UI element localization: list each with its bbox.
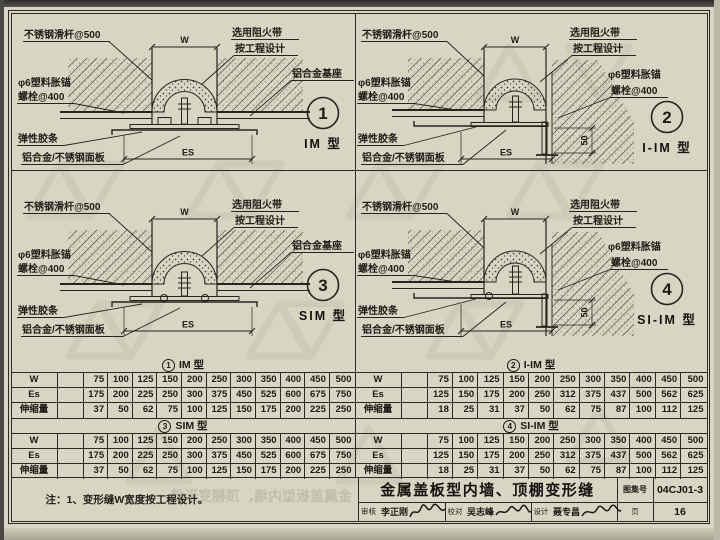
row-label-cell: W	[12, 434, 58, 448]
value-cell: 150	[453, 449, 478, 463]
label-panel: 铝合金/不锈钢面板	[362, 151, 446, 164]
diagram-row-top: W ES 不锈钢滑杆@500 选用阻火带 按工程设计 铝合金基座 φ6塑料胀锚 …	[12, 14, 707, 171]
reviewer-label: 审核	[359, 503, 379, 521]
value-cell: 500	[681, 434, 706, 448]
value-cell: 31	[478, 464, 503, 479]
value-cell: 375	[207, 388, 232, 402]
dimension-tables: 1IM 型W75100125150200250300350400450500Es…	[12, 358, 707, 478]
row-label-cell: 伸缩量	[356, 403, 402, 418]
value-cell: 750	[330, 449, 355, 463]
label-fire-2: 按工程设计	[573, 42, 623, 55]
sheet-content: W ES 不锈钢滑杆@500 选用阻火带 按工程设计 铝合金基座 φ6塑料胀锚 …	[12, 14, 707, 521]
value-cell: 18	[428, 403, 453, 418]
value-cell: 300	[580, 373, 605, 387]
label-panel: 铝合金/不锈钢面板	[22, 151, 106, 164]
value-cell: 250	[554, 434, 579, 448]
value-cell: 200	[529, 434, 554, 448]
circled-number: 1	[162, 359, 175, 372]
value-cell: 250	[330, 464, 355, 479]
diagram-3-drawing: W ES 不锈钢滑杆@500 选用阻火带 按工程设计 铝合金基座 φ6塑料胀锚 …	[12, 186, 356, 342]
blank-cell	[58, 388, 84, 402]
value-cell: 200	[529, 373, 554, 387]
value-cell: 562	[656, 388, 681, 402]
label-slide-rod: 不锈钢滑杆@500	[362, 28, 439, 41]
value-cell: 87	[605, 403, 630, 418]
value-cell: 150	[157, 434, 182, 448]
label-rubber: 弹性胶条	[18, 132, 59, 145]
value-cell: 200	[504, 388, 529, 402]
dim-w: W	[180, 35, 189, 45]
table-row: W75100125150200250300350400450500	[12, 434, 355, 449]
value-cell: 500	[681, 373, 706, 387]
value-cell: 200	[281, 403, 306, 418]
label-fire-2: 按工程设计	[573, 214, 623, 227]
signature-scribble-icon	[407, 503, 447, 521]
label-fire-2: 按工程设计	[235, 214, 285, 227]
table-type-name: SIM 型	[175, 420, 207, 432]
value-cell: 100	[630, 464, 655, 479]
blank-cell	[402, 464, 428, 479]
value-cell: 312	[554, 388, 579, 402]
value-cell: 250	[529, 388, 554, 402]
value-cell: 125	[478, 373, 503, 387]
value-cell: 37	[84, 464, 109, 479]
circled-number: 4	[503, 420, 516, 433]
value-cell: 600	[281, 449, 306, 463]
value-cell: 62	[133, 403, 158, 418]
value-cell: 437	[605, 449, 630, 463]
value-cell: 375	[207, 449, 232, 463]
value-cell: 100	[630, 403, 655, 418]
value-cell: 450	[305, 373, 330, 387]
value-cell: 150	[157, 373, 182, 387]
value-cell: 125	[428, 449, 453, 463]
table-title: 2I-IM 型	[356, 358, 707, 373]
label-base: 铝合金基座	[292, 67, 342, 80]
label-anchor-right-2: 螺栓@400	[611, 84, 658, 97]
diagram-type: SIM 型	[298, 308, 346, 323]
diagram-4-drawing: W ES 50 不锈钢滑杆@500 选用阻火带 按工程设计 φ6塑料胀锚 螺栓@…	[356, 186, 700, 342]
value-cell: 87	[605, 464, 630, 479]
label-rubber: 弹性胶条	[358, 132, 399, 145]
value-cell: 125	[207, 403, 232, 418]
label-fire-2: 按工程设计	[235, 42, 285, 55]
value-cell: 225	[305, 464, 330, 479]
value-cell: 562	[656, 449, 681, 463]
row-label-cell: W	[356, 434, 402, 448]
value-cell: 600	[281, 388, 306, 402]
label-anchor-left-2: 螺栓@400	[358, 90, 405, 103]
value-cell: 75	[157, 403, 182, 418]
title-block-row-1: 金属盖板型内墙、顶棚变形缝 图集号 04CJ01-3	[359, 478, 707, 503]
row-label-cell: W	[356, 373, 402, 387]
row-label-cell: Es	[356, 449, 402, 463]
value-cell: 312	[554, 449, 579, 463]
value-cell: 350	[256, 373, 281, 387]
table-row: 伸缩量37506275100125150175200225250	[12, 403, 355, 418]
row-label-cell: 伸缩量	[12, 403, 58, 418]
value-cell: 450	[656, 373, 681, 387]
value-cell: 225	[305, 403, 330, 418]
blank-cell	[58, 449, 84, 463]
blank-cell	[402, 449, 428, 463]
value-cell: 125	[207, 464, 232, 479]
value-cell: 450	[656, 434, 681, 448]
value-cell: 75	[580, 403, 605, 418]
label-anchor-1: φ6塑料胀锚	[18, 248, 71, 261]
tables-right-column: 2I-IM 型W75100125150200250300350400450500…	[356, 358, 707, 477]
value-cell: 300	[231, 373, 256, 387]
value-cell: 150	[231, 403, 256, 418]
diagram-type: I-IM 型	[642, 140, 692, 155]
label-fire-1: 选用阻火带	[570, 26, 620, 39]
value-cell: 50	[529, 403, 554, 418]
dim-50: 50	[579, 135, 589, 145]
scan-edge-top	[0, 0, 720, 7]
circled-number: 3	[158, 420, 171, 433]
table-title: 1IM 型	[12, 358, 355, 373]
dim-es: ES	[181, 147, 193, 157]
diagram-2-i-im: W ES 50 不锈钢滑杆@500 选用阻火带 按工程设计 φ6塑料胀锚 螺栓@…	[356, 14, 707, 170]
value-cell: 500	[330, 373, 355, 387]
value-cell: 675	[305, 449, 330, 463]
value-cell: 150	[453, 388, 478, 402]
table-row: W75100125150200250300350400450500	[356, 373, 707, 388]
diagram-4-si-im: W ES 50 不锈钢滑杆@500 选用阻火带 按工程设计 φ6塑料胀锚 螺栓@…	[356, 171, 707, 358]
value-cell: 200	[182, 434, 207, 448]
blank-cell	[58, 464, 84, 479]
value-cell: 50	[529, 464, 554, 479]
table-row: Es175200225250300375450525600675750	[12, 449, 355, 464]
dim-w: W	[510, 35, 519, 45]
value-cell: 150	[231, 464, 256, 479]
table-row: W75100125150200250300350400450500	[12, 373, 355, 388]
dim-w: W	[510, 207, 519, 217]
dim-es: ES	[181, 319, 193, 329]
value-cell: 175	[84, 388, 109, 402]
table-row: Es125150175200250312375437500562625	[356, 449, 707, 464]
value-cell: 175	[478, 449, 503, 463]
label-fire-1: 选用阻火带	[232, 26, 282, 39]
value-cell: 250	[207, 373, 232, 387]
value-cell: 200	[281, 464, 306, 479]
value-cell: 400	[630, 373, 655, 387]
value-cell: 350	[256, 434, 281, 448]
label-panel: 铝合金/不锈钢面板	[22, 323, 106, 336]
value-cell: 525	[256, 449, 281, 463]
table-sim: 3SIM 型W75100125150200250300350400450500E…	[12, 418, 355, 478]
scan-edge-right	[714, 0, 720, 540]
value-cell: 112	[656, 403, 681, 418]
value-cell: 100	[453, 373, 478, 387]
row-label-cell: Es	[12, 449, 58, 463]
note-box: 金属盖板型内墙、顶棚变形缝 注：1、变形缝W宽度按工程设计。	[12, 478, 359, 521]
label-slide-rod: 不锈钢滑杆@500	[24, 28, 101, 41]
dim-50: 50	[579, 307, 589, 317]
label-anchor-right-1: φ6塑料胀锚	[608, 240, 661, 253]
value-cell: 25	[453, 403, 478, 418]
row-label-cell: 伸缩量	[356, 464, 402, 479]
value-cell: 450	[305, 434, 330, 448]
table-row: Es175200225250300375450525600675750	[12, 388, 355, 403]
value-cell: 400	[630, 434, 655, 448]
value-cell: 450	[231, 449, 256, 463]
label-anchor-right-1: φ6塑料胀锚	[608, 68, 661, 81]
value-cell: 31	[478, 403, 503, 418]
value-cell: 750	[330, 388, 355, 402]
value-cell: 200	[108, 388, 133, 402]
value-cell: 50	[108, 403, 133, 418]
title-block-row-2: 审核 李正刚 校对 吴志峰 设计 聂专昌	[359, 503, 707, 521]
value-cell: 125	[133, 373, 158, 387]
diagram-number: 1	[318, 104, 327, 123]
label-slide-rod: 不锈钢滑杆@500	[24, 200, 101, 213]
value-cell: 100	[182, 403, 207, 418]
table-type-name: I-IM 型	[524, 359, 556, 371]
value-cell: 125	[478, 434, 503, 448]
value-cell: 625	[681, 449, 706, 463]
diagram-3-sim: W ES 不锈钢滑杆@500 选用阻火带 按工程设计 铝合金基座 φ6塑料胀锚 …	[12, 171, 356, 358]
value-cell: 400	[281, 434, 306, 448]
value-cell: 75	[428, 434, 453, 448]
label-anchor-1: φ6塑料胀锚	[18, 76, 71, 89]
value-cell: 500	[630, 449, 655, 463]
row-label-cell: Es	[12, 388, 58, 402]
blank-cell	[58, 403, 84, 418]
title-block: 金属盖板型内墙、顶棚变形缝 图集号 04CJ01-3 审核 李正刚 校对 吴志峰	[359, 478, 707, 521]
label-anchor-left-2: 螺栓@400	[358, 262, 405, 275]
value-cell: 75	[428, 373, 453, 387]
value-cell: 100	[453, 434, 478, 448]
value-cell: 62	[554, 403, 579, 418]
value-cell: 100	[108, 434, 133, 448]
label-base: 铝合金基座	[292, 239, 342, 252]
footer-band: 金属盖板型内墙、顶棚变形缝 注：1、变形缝W宽度按工程设计。 金属盖板型内墙、顶…	[12, 478, 707, 521]
diagram-1-drawing: W ES 不锈钢滑杆@500 选用阻火带 按工程设计 铝合金基座 φ6塑料胀锚 …	[12, 14, 356, 170]
value-cell: 375	[580, 449, 605, 463]
blank-cell	[58, 434, 84, 448]
value-cell: 200	[182, 373, 207, 387]
diagram-number: 3	[318, 276, 327, 295]
value-cell: 75	[157, 464, 182, 479]
value-cell: 450	[231, 388, 256, 402]
label-rubber: 弹性胶条	[18, 304, 59, 317]
diagram-type: SI-IM 型	[637, 312, 697, 327]
dim-es: ES	[499, 147, 511, 157]
value-cell: 250	[529, 449, 554, 463]
diagram-row-bottom: W ES 不锈钢滑杆@500 选用阻火带 按工程设计 铝合金基座 φ6塑料胀锚 …	[12, 171, 707, 358]
value-cell: 125	[681, 464, 706, 479]
label-rubber: 弹性胶条	[358, 304, 399, 317]
value-cell: 100	[182, 464, 207, 479]
value-cell: 250	[554, 373, 579, 387]
table-si-im: 4SI-IM 型W7510012515020025030035040045050…	[356, 418, 707, 478]
scan-edge-left	[0, 0, 4, 540]
value-cell: 250	[207, 434, 232, 448]
value-cell: 250	[157, 388, 182, 402]
value-cell: 225	[133, 388, 158, 402]
value-cell: 200	[504, 449, 529, 463]
table-title: 3SIM 型	[12, 419, 355, 434]
signature-scribble-icon	[579, 503, 623, 521]
note-text: 注：1、变形缝W宽度按工程设计。	[46, 492, 209, 507]
designer-label: 设计	[531, 503, 551, 521]
page-number: 16	[653, 503, 707, 521]
value-cell: 350	[605, 434, 630, 448]
atlas-sheet: W ES 不锈钢滑杆@500 选用阻火带 按工程设计 铝合金基座 φ6塑料胀锚 …	[8, 10, 710, 524]
diagram-2-drawing: W ES 50 不锈钢滑杆@500 选用阻火带 按工程设计 φ6塑料胀锚 螺栓@…	[356, 14, 700, 170]
value-cell: 437	[605, 388, 630, 402]
label-anchor-2: 螺栓@400	[18, 90, 65, 103]
value-cell: 300	[580, 434, 605, 448]
atlas-no-value: 04CJ01-3	[653, 478, 707, 502]
value-cell: 62	[133, 464, 158, 479]
value-cell: 18	[428, 464, 453, 479]
signature-scribble-icon	[493, 503, 533, 521]
value-cell: 300	[231, 434, 256, 448]
value-cell: 75	[84, 373, 109, 387]
label-fire-1: 选用阻火带	[570, 198, 620, 211]
label-panel: 铝合金/不锈钢面板	[362, 323, 446, 336]
value-cell: 500	[330, 434, 355, 448]
label-anchor-right-2: 螺栓@400	[611, 256, 658, 269]
tables-left-column: 1IM 型W75100125150200250300350400450500Es…	[12, 358, 356, 477]
value-cell: 175	[256, 464, 281, 479]
value-cell: 25	[453, 464, 478, 479]
label-anchor-left-1: φ6塑料胀锚	[358, 76, 411, 89]
row-label-cell: 伸缩量	[12, 464, 58, 479]
value-cell: 125	[428, 388, 453, 402]
label-slide-rod: 不锈钢滑杆@500	[362, 200, 439, 213]
value-cell: 300	[182, 388, 207, 402]
label-anchor-left-1: φ6塑料胀锚	[358, 248, 411, 261]
table-row: 伸缩量1825313750627587100112125	[356, 403, 707, 418]
table-im: 1IM 型W75100125150200250300350400450500Es…	[12, 358, 355, 418]
value-cell: 350	[605, 373, 630, 387]
atlas-no-label: 图集号	[617, 478, 653, 502]
dim-w: W	[180, 207, 189, 217]
value-cell: 62	[554, 464, 579, 479]
value-cell: 37	[504, 464, 529, 479]
label-fire-1: 选用阻火带	[232, 198, 282, 211]
value-cell: 375	[580, 388, 605, 402]
value-cell: 125	[133, 434, 158, 448]
table-title: 4SI-IM 型	[356, 419, 707, 434]
diagram-type: IM 型	[304, 136, 342, 151]
value-cell: 150	[504, 373, 529, 387]
table-type-name: IM 型	[179, 359, 204, 371]
table-row: 伸缩量1825313750627587100112125	[356, 464, 707, 479]
value-cell: 625	[681, 388, 706, 402]
diagram-1-im: W ES 不锈钢滑杆@500 选用阻火带 按工程设计 铝合金基座 φ6塑料胀锚 …	[12, 14, 356, 170]
value-cell: 112	[656, 464, 681, 479]
value-cell: 75	[580, 464, 605, 479]
table-row: W75100125150200250300350400450500	[356, 434, 707, 449]
row-label-cell: W	[12, 373, 58, 387]
value-cell: 175	[478, 388, 503, 402]
scan-edge-bottom	[0, 528, 720, 540]
blank-cell	[402, 403, 428, 418]
blank-cell	[58, 373, 84, 387]
value-cell: 225	[133, 449, 158, 463]
dim-es: ES	[499, 319, 511, 329]
diagram-number: 2	[662, 108, 671, 127]
value-cell: 500	[630, 388, 655, 402]
value-cell: 300	[182, 449, 207, 463]
value-cell: 200	[108, 449, 133, 463]
value-cell: 250	[330, 403, 355, 418]
row-label-cell: Es	[356, 388, 402, 402]
table-i-im: 2I-IM 型W75100125150200250300350400450500…	[356, 358, 707, 418]
value-cell: 175	[84, 449, 109, 463]
table-row: Es125150175200250312375437500562625	[356, 388, 707, 403]
blank-cell	[402, 388, 428, 402]
value-cell: 100	[108, 373, 133, 387]
circled-number: 2	[507, 359, 520, 372]
blank-cell	[402, 434, 428, 448]
designer-signature	[583, 503, 617, 521]
value-cell: 400	[281, 373, 306, 387]
diagram-number: 4	[662, 280, 672, 299]
value-cell: 50	[108, 464, 133, 479]
value-cell: 175	[256, 403, 281, 418]
value-cell: 37	[84, 403, 109, 418]
reviewer-signature	[411, 503, 445, 521]
checker-signature	[497, 503, 531, 521]
value-cell: 525	[256, 388, 281, 402]
blank-cell	[402, 373, 428, 387]
table-row: 伸缩量37506275100125150175200225250	[12, 464, 355, 479]
value-cell: 125	[681, 403, 706, 418]
checker-label: 校对	[445, 503, 465, 521]
value-cell: 37	[504, 403, 529, 418]
label-anchor-2: 螺栓@400	[18, 262, 65, 275]
value-cell: 75	[84, 434, 109, 448]
table-type-name: SI-IM 型	[520, 420, 559, 432]
value-cell: 250	[157, 449, 182, 463]
value-cell: 150	[504, 434, 529, 448]
value-cell: 675	[305, 388, 330, 402]
sheet-title: 金属盖板型内墙、顶棚变形缝	[359, 479, 617, 500]
